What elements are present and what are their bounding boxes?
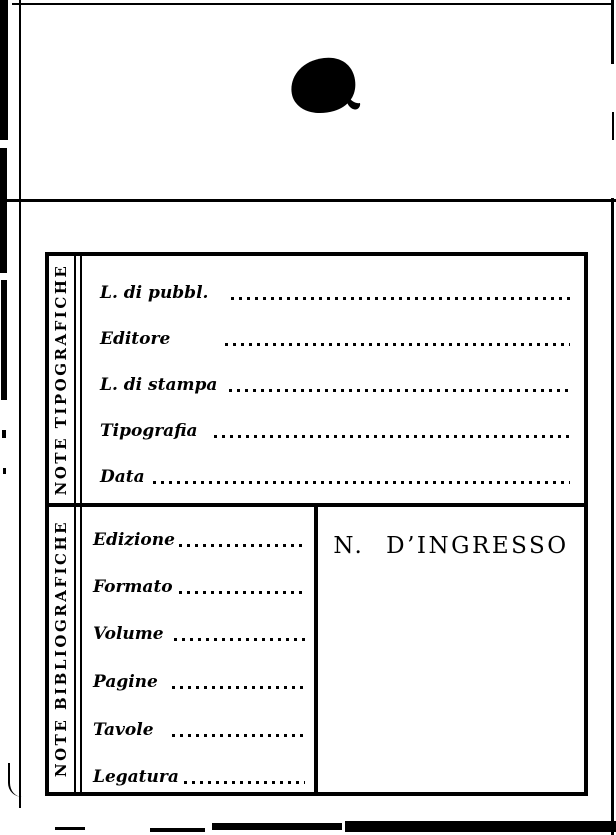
- field-row-edizione: Edizione: [93, 528, 305, 550]
- section-caption-note-bibliografiche: NOTE BIBLIOGRAFICHE: [49, 509, 73, 788]
- card-right-rule: [611, 198, 614, 835]
- field-blank-line: [172, 734, 305, 737]
- field-row-l-di-pubbl: L. di pubbl.: [100, 281, 570, 303]
- field-label: Data: [100, 467, 145, 487]
- scan-left-edge-band: [0, 148, 7, 273]
- field-blank-line: [225, 343, 570, 346]
- ingresso-panel: N. D’INGRESSO: [318, 507, 584, 792]
- card-right-rule: [612, 112, 614, 140]
- card-left-rule: [19, 0, 21, 808]
- scan-bottom-smudge: [345, 821, 616, 832]
- catalog-form-inner: NOTE TIPOGRAFICHE NOTE BIBLIOGRAFICHE L.…: [49, 256, 584, 792]
- caption-double-rule: [74, 256, 82, 792]
- scan-bottom-smudge: [212, 823, 342, 830]
- field-blank-line: [179, 544, 305, 547]
- field-blank-line: [214, 435, 570, 438]
- field-row-volume: Volume: [93, 622, 305, 644]
- field-label: Edizione: [93, 530, 175, 550]
- field-label: Tipografia: [100, 421, 198, 441]
- field-row-data: Data: [100, 465, 570, 487]
- field-blank-line: [153, 481, 570, 484]
- card-right-rule: [611, 0, 614, 64]
- field-row-pagine: Pagine: [93, 670, 305, 692]
- scan-corner-mark: [8, 763, 24, 797]
- scan-top-rule: [12, 3, 614, 5]
- field-label: Tavole: [93, 720, 154, 740]
- field-label: Volume: [93, 624, 164, 644]
- field-row-tipografia: Tipografia: [100, 419, 570, 441]
- field-row-legatura: Legatura: [93, 765, 305, 787]
- card-horizontal-rule: [0, 199, 616, 202]
- catalog-form-box: NOTE TIPOGRAFICHE NOTE BIBLIOGRAFICHE L.…: [45, 252, 588, 796]
- scan-left-edge-band: [0, 0, 8, 140]
- field-label: Editore: [100, 329, 170, 349]
- scan-bottom-smudge: [55, 827, 85, 830]
- field-row-tavole: Tavole: [93, 718, 305, 740]
- field-label: Pagine: [93, 672, 158, 692]
- scan-speck: [2, 430, 6, 438]
- field-blank-line: [179, 591, 305, 594]
- scan-speck: [3, 468, 6, 474]
- field-row-l-di-stampa: L. di stampa: [100, 373, 570, 395]
- field-blank-line: [184, 781, 305, 784]
- ink-blot-stamp-icon: [288, 56, 362, 120]
- field-blank-line: [174, 638, 305, 641]
- field-label: Formato: [93, 577, 173, 597]
- field-blank-line: [231, 297, 570, 300]
- field-row-editore: Editore: [100, 327, 570, 349]
- field-blank-line: [172, 686, 305, 689]
- section-caption-note-tipografiche: NOTE TIPOGRAFICHE: [49, 256, 73, 503]
- field-label: L. di pubbl.: [100, 283, 208, 303]
- scanned-catalog-card: NOTE TIPOGRAFICHE NOTE BIBLIOGRAFICHE L.…: [0, 0, 616, 835]
- ingresso-title: N. D’INGRESSO: [333, 533, 568, 559]
- field-blank-line: [229, 389, 570, 392]
- scan-left-edge-band: [1, 280, 7, 400]
- field-label: L. di stampa: [100, 375, 217, 395]
- field-row-formato: Formato: [93, 575, 305, 597]
- field-label: Legatura: [93, 767, 179, 787]
- scan-bottom-smudge: [150, 828, 205, 832]
